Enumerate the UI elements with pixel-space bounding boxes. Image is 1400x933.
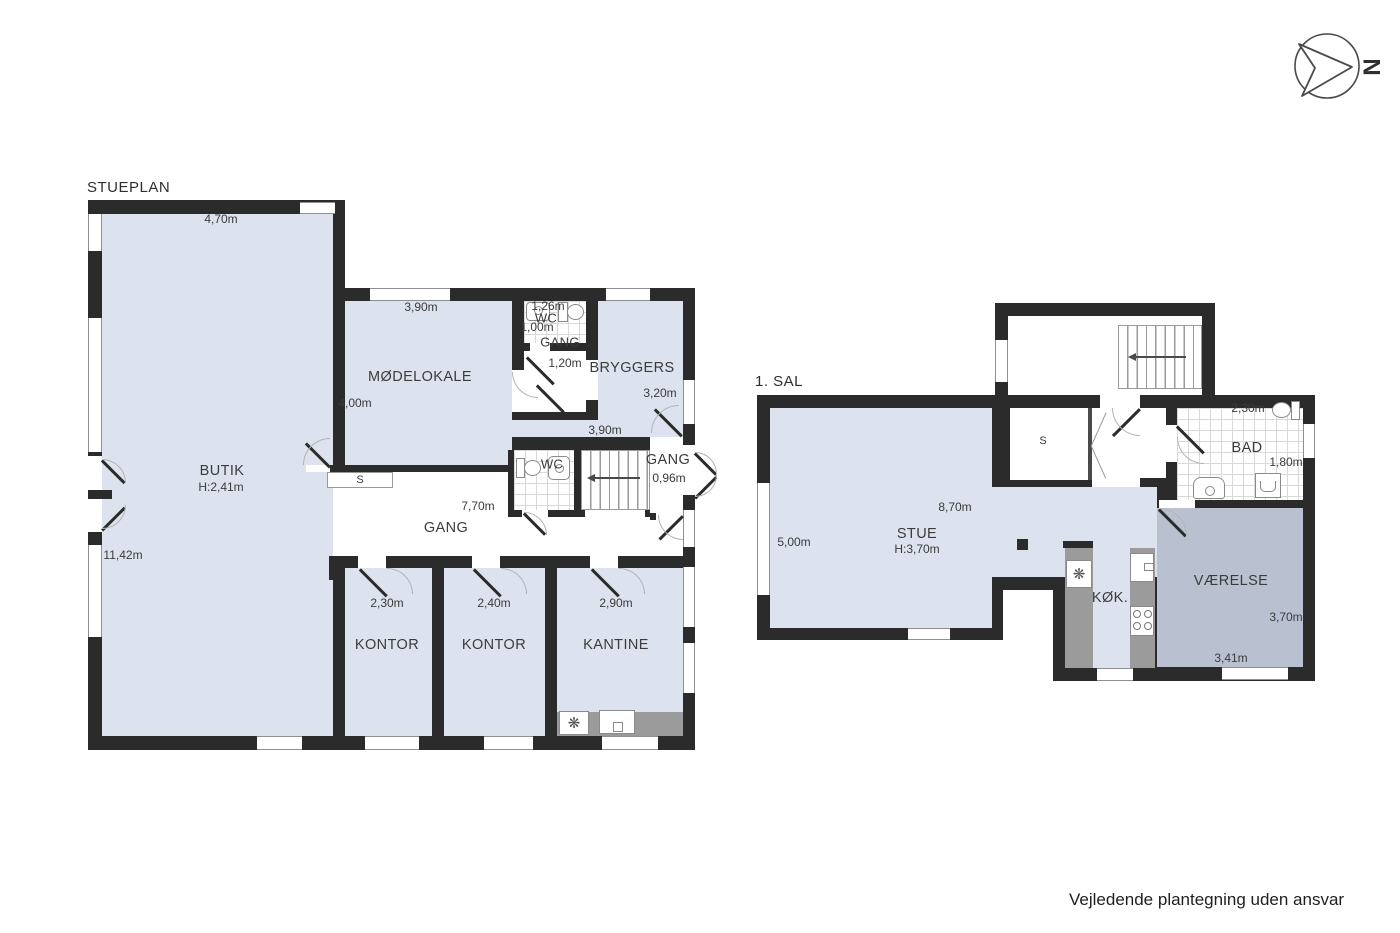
compass-north-label: N [1357, 58, 1385, 75]
stairs-arrow-head [587, 474, 595, 482]
measurement-butik-depth: 11,42m [103, 548, 142, 562]
room-label-gang-exit: GANG [646, 452, 690, 468]
room-label-kontor1: KONTOR [355, 637, 419, 653]
wall [88, 490, 112, 499]
burner-icon [1133, 610, 1141, 618]
window [257, 736, 302, 750]
wall [330, 465, 512, 472]
toilet-bowl-icon [567, 304, 584, 320]
measurement-bryggers-width: 3,90m [588, 423, 621, 437]
window [1222, 667, 1288, 680]
measurement-vaerelse-width: 3,41m [1214, 651, 1247, 665]
measurement-butik-width: 4,70m [204, 212, 237, 226]
window [683, 510, 695, 547]
room-stue [770, 408, 992, 628]
wall [329, 556, 341, 580]
door-arc [695, 452, 717, 474]
window [602, 736, 658, 750]
measurement-moedelokale-width: 3,90m [404, 300, 437, 314]
room-koekken [1093, 548, 1130, 668]
pillar [1017, 539, 1028, 550]
sink-tap-icon [613, 722, 623, 732]
door-arc [695, 475, 717, 497]
measurement-gang-top-depth: 1,20m [548, 356, 581, 370]
measurement-stue-height: H:3,70m [894, 542, 939, 556]
burner-icon [1133, 622, 1141, 630]
window [88, 214, 102, 251]
door-gap [1092, 478, 1140, 487]
measurement-kontor2-width: 2,40m [477, 596, 510, 610]
measurement-wc-top-depth: 1,00m [520, 320, 553, 334]
door-gap [1159, 500, 1195, 508]
room-label-gang-main: GANG [424, 520, 468, 536]
window [683, 643, 695, 693]
closet-label: S [1039, 435, 1046, 447]
sink-tap-icon [1144, 563, 1154, 571]
window [606, 288, 650, 301]
window [683, 567, 695, 627]
washing-machine-tub-icon [1260, 481, 1276, 492]
disclaimer-text: Vejledende plantegning uden ansvar [1069, 890, 1344, 910]
door-gap [1100, 395, 1140, 408]
measurement-bad-depth: 1,80m [1269, 455, 1302, 469]
room-label-bryggers: BRYGGERS [589, 360, 674, 376]
door-gap [358, 556, 386, 568]
window [88, 318, 102, 452]
window [1097, 668, 1133, 681]
window [365, 736, 419, 750]
measurement-moedelokale-depth: 4,00m [338, 396, 371, 410]
measurement-vaerelse-depth: 3,70m [1269, 610, 1302, 624]
freezer-snowflake-icon: ❋ [568, 714, 581, 732]
window [1303, 424, 1315, 458]
room-label-bad: BAD [1231, 440, 1262, 456]
window [88, 545, 102, 637]
measurement-bryggers-depth: 3,20m [643, 386, 676, 400]
room-label-gang-top: GANG [540, 335, 579, 350]
window [757, 483, 770, 595]
stairs-direction-arrow [594, 477, 640, 479]
room-label-kantine: KANTINE [583, 637, 649, 653]
burner-icon [1144, 610, 1152, 618]
room-label-moedelokale: MØDELOKALE [368, 369, 472, 385]
room-label-kontor2: KONTOR [462, 637, 526, 653]
stairs-opening [585, 510, 645, 517]
toilet-bowl-icon [1272, 402, 1291, 418]
measurement-gang-exit-width: 0,96m [652, 471, 685, 485]
window [683, 380, 695, 424]
window [995, 340, 1008, 382]
measurement-bad-width: 2,30m [1231, 401, 1264, 415]
measurement-butik-height: H:2,41m [198, 480, 243, 494]
window [484, 736, 533, 750]
stairs-arrow-head [1128, 353, 1136, 361]
toilet-bowl-icon [524, 460, 541, 476]
room-label-stue: STUE [897, 526, 937, 542]
sink-tap-icon [1205, 486, 1215, 496]
closet-label: S [356, 474, 363, 486]
freezer-snowflake-icon: ❋ [1073, 565, 1086, 583]
stairs-direction-arrow [1136, 356, 1186, 358]
floorplan-canvas: N STUEPLAN ❋ [0, 0, 1400, 933]
room-label-wc-mid: WC [541, 457, 563, 472]
room-label-vaerelse: VÆRELSE [1194, 573, 1269, 589]
sal1-title: 1. SAL [755, 373, 803, 390]
measurement-gang-main-width: 7,70m [461, 499, 494, 513]
measurement-stue-depth: 5,00m [777, 535, 810, 549]
window [300, 202, 335, 214]
door-gap [590, 556, 618, 568]
building-notch [1003, 590, 1053, 640]
door-gap [472, 556, 500, 568]
room-label-koekken: KØK. [1092, 590, 1128, 606]
burner-icon [1144, 622, 1152, 630]
door-gap [1166, 425, 1177, 462]
toilet-icon [1291, 401, 1300, 420]
room-label-butik: BUTIK [200, 463, 245, 479]
measurement-kantine-width: 2,90m [599, 596, 632, 610]
closet-s [1010, 408, 1098, 480]
measurement-stue-width: 8,70m [938, 500, 971, 514]
window [908, 628, 950, 640]
wall [1063, 541, 1093, 548]
stueplan-title: STUEPLAN [87, 179, 170, 196]
measurement-kontor1-width: 2,30m [370, 596, 403, 610]
